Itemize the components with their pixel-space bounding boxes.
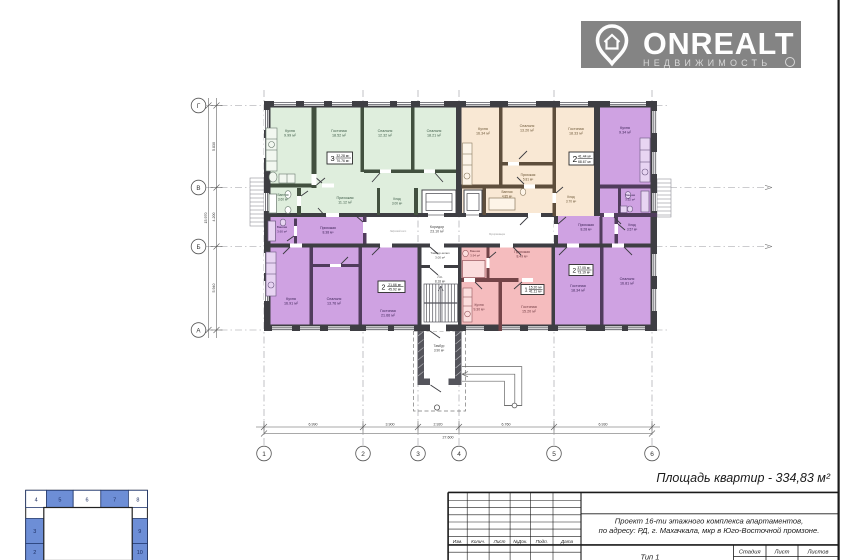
svg-text:Дата: Дата — [560, 539, 574, 544]
svg-text:Ванная: Ванная — [470, 249, 481, 253]
svg-text:Кухня: Кухня — [478, 127, 488, 131]
svg-text:3.60 м²: 3.60 м² — [278, 198, 288, 202]
svg-text:Тип 1: Тип 1 — [641, 553, 660, 560]
svg-text:Спальня: Спальня — [520, 124, 535, 128]
svg-text:9.30 м²: 9.30 м² — [473, 308, 485, 312]
svg-text:Клад: Клад — [628, 223, 635, 227]
svg-text:Прихожая: Прихожая — [521, 173, 536, 177]
svg-text:3.900: 3.900 — [386, 423, 395, 427]
svg-text:Мусорокамера: Мусорокамера — [489, 234, 506, 236]
svg-text:16.34 м²: 16.34 м² — [476, 132, 491, 136]
svg-text:70.76 м²: 70.76 м² — [336, 159, 350, 163]
svg-text:2: 2 — [33, 550, 36, 556]
svg-text:3: 3 — [416, 451, 420, 458]
svg-text:Клад: Клад — [567, 195, 574, 199]
svg-text:15.20 м²: 15.20 м² — [522, 310, 537, 314]
svg-text:4.200: 4.200 — [212, 213, 216, 222]
svg-text:Б: Б — [196, 244, 200, 251]
svg-text:18.34 м²: 18.34 м² — [571, 289, 586, 293]
svg-text:37.05 м²: 37.05 м² — [577, 266, 591, 270]
svg-text:6.930: 6.930 — [599, 423, 608, 427]
svg-text:Площадь квартир - 334,83 м²: Площадь квартир - 334,83 м² — [656, 471, 831, 485]
svg-text:Гостиная: Гостиная — [521, 305, 536, 309]
svg-text:3.70 м²: 3.70 м² — [566, 200, 576, 204]
svg-text:ONREALT: ONREALT — [643, 27, 794, 61]
svg-text:1: 1 — [525, 288, 528, 294]
svg-text:3.94 м²: 3.94 м² — [470, 254, 480, 258]
svg-text:5: 5 — [552, 451, 556, 458]
svg-text:4: 4 — [457, 451, 461, 458]
svg-text:11.12 м²: 11.12 м² — [338, 201, 353, 205]
svg-text:41.44 м²: 41.44 м² — [578, 155, 592, 159]
svg-text:23.10 м²: 23.10 м² — [430, 230, 444, 234]
svg-text:3: 3 — [331, 154, 335, 163]
svg-text:Спальня: Спальня — [427, 129, 442, 133]
svg-text:Ванная: Ванная — [625, 193, 636, 197]
svg-text:18.33 м²: 18.33 м² — [569, 132, 584, 136]
svg-text:Прихожая: Прихожая — [320, 226, 336, 230]
svg-text:Тамбур: Тамбур — [434, 344, 445, 348]
svg-text:8.28 м²: 8.28 м² — [580, 228, 592, 232]
svg-text:3.00 м²: 3.00 м² — [435, 256, 445, 260]
svg-text:Листов: Листов — [806, 550, 828, 556]
svg-text:по адресу: РД, г. Махачкала, м: по адресу: РД, г. Махачкала, мкр в Юго-В… — [599, 526, 820, 535]
svg-text:Прихожая: Прихожая — [514, 250, 530, 254]
svg-text:Тамбур-шлюз: Тамбур-шлюз — [431, 251, 451, 255]
svg-text:5.830: 5.830 — [212, 142, 216, 151]
svg-text:Подп.: Подп. — [536, 539, 548, 544]
svg-text:41.11 м²: 41.11 м² — [529, 290, 543, 294]
svg-text:Кухня: Кухня — [474, 303, 483, 307]
svg-text:27.600: 27.600 — [443, 436, 454, 440]
svg-text:Гостиная: Гостиная — [568, 127, 583, 131]
svg-text:Спальня: Спальня — [378, 129, 393, 133]
svg-text:16.91 м²: 16.91 м² — [284, 302, 299, 306]
svg-text:Проект 16-ти этажного комплекс: Проект 16-ти этажного комплекса апартаме… — [615, 517, 803, 526]
svg-text:Коридор: Коридор — [430, 225, 444, 229]
svg-text:НЕДВИЖИМОСТЬ: НЕДВИЖИМОСТЬ — [643, 58, 771, 68]
svg-text:3.52 м²: 3.52 м² — [625, 198, 635, 202]
svg-text:7: 7 — [113, 497, 116, 503]
svg-text:13.76 м²: 13.76 м² — [327, 302, 342, 306]
svg-text:32.28 м²: 32.28 м² — [336, 154, 350, 158]
svg-text:Изм.: Изм. — [453, 539, 463, 544]
svg-text:21.66 м²: 21.66 м² — [381, 314, 396, 318]
svg-text:4: 4 — [35, 497, 38, 503]
svg-text:Гостиная: Гостиная — [380, 309, 395, 313]
svg-text:3.60 м²: 3.60 м² — [277, 230, 287, 234]
svg-text:Колич.: Колич. — [471, 539, 485, 544]
svg-text:18.52 м²: 18.52 м² — [332, 134, 347, 138]
svg-text:3: 3 — [33, 529, 36, 535]
svg-text:6: 6 — [650, 451, 654, 458]
svg-text:Ванная: Ванная — [277, 225, 288, 229]
svg-text:В: В — [196, 185, 200, 192]
svg-text:2: 2 — [573, 268, 577, 275]
svg-text:8.18 м²: 8.18 м² — [435, 280, 445, 284]
svg-text:Кухня: Кухня — [285, 129, 295, 133]
svg-text:Спальня: Спальня — [620, 277, 635, 281]
svg-text:2: 2 — [382, 285, 386, 292]
svg-text:18.21 м²: 18.21 м² — [427, 134, 442, 138]
svg-text:Прихожая: Прихожая — [336, 196, 353, 200]
svg-text:12.32 м²: 12.32 м² — [378, 134, 393, 138]
svg-text:2: 2 — [361, 451, 365, 458]
svg-text:10: 10 — [137, 550, 143, 556]
svg-text:15.970: 15.970 — [204, 213, 208, 224]
svg-text:1: 1 — [262, 451, 266, 458]
svg-text:Стадия: Стадия — [739, 550, 761, 556]
svg-text:45.92 м²: 45.92 м² — [388, 288, 402, 292]
svg-text:13.20 м²: 13.20 м² — [520, 129, 535, 133]
svg-text:68.67 м²: 68.67 м² — [578, 160, 592, 164]
svg-text:Лист: Лист — [493, 539, 506, 544]
svg-text:Гостиная: Гостиная — [331, 129, 346, 133]
svg-text:2.920: 2.920 — [434, 423, 443, 427]
svg-text:№Док.: №Док. — [513, 539, 527, 544]
svg-text:Клад: Клад — [393, 197, 400, 201]
svg-text:8.38 м²: 8.38 м² — [322, 231, 334, 235]
svg-text:6: 6 — [85, 497, 88, 503]
svg-text:9: 9 — [138, 529, 141, 535]
svg-text:3.57 м²: 3.57 м² — [627, 228, 637, 232]
svg-text:Прихожая: Прихожая — [578, 223, 594, 227]
svg-text:9.34 м²: 9.34 м² — [619, 131, 632, 135]
svg-text:9.99 м²: 9.99 м² — [284, 134, 297, 138]
svg-text:Л.к.: Л.к. — [437, 275, 442, 279]
svg-text:Спальня: Спальня — [327, 297, 342, 301]
svg-text:73.19 м²: 73.19 м² — [577, 271, 591, 275]
svg-text:Ванная: Ванная — [502, 190, 513, 194]
svg-text:Лист: Лист — [774, 550, 790, 556]
svg-text:16.81 м²: 16.81 м² — [620, 282, 635, 286]
svg-text:21.66 м²: 21.66 м² — [388, 283, 402, 287]
svg-text:6.990: 6.990 — [309, 423, 318, 427]
svg-text:Ванная: Ванная — [278, 193, 289, 197]
svg-text:8.49 м²: 8.49 м² — [516, 255, 528, 259]
svg-text:Лифтовой холл: Лифтовой холл — [390, 230, 407, 233]
svg-text:5.940: 5.940 — [212, 284, 216, 293]
svg-text:3.00 м²: 3.00 м² — [392, 202, 402, 206]
svg-text:2: 2 — [573, 154, 578, 164]
svg-text:Кухня: Кухня — [620, 126, 630, 130]
svg-text:4.85 м²: 4.85 м² — [502, 195, 512, 199]
svg-text:5: 5 — [58, 497, 61, 503]
svg-text:Кухня: Кухня — [286, 297, 296, 301]
svg-text:3.90 м²: 3.90 м² — [434, 349, 444, 353]
svg-text:8: 8 — [136, 497, 139, 503]
svg-text:6.760: 6.760 — [502, 423, 511, 427]
svg-text:5.81 м²: 5.81 м² — [523, 178, 533, 182]
svg-text:Гостиная: Гостиная — [570, 284, 585, 288]
